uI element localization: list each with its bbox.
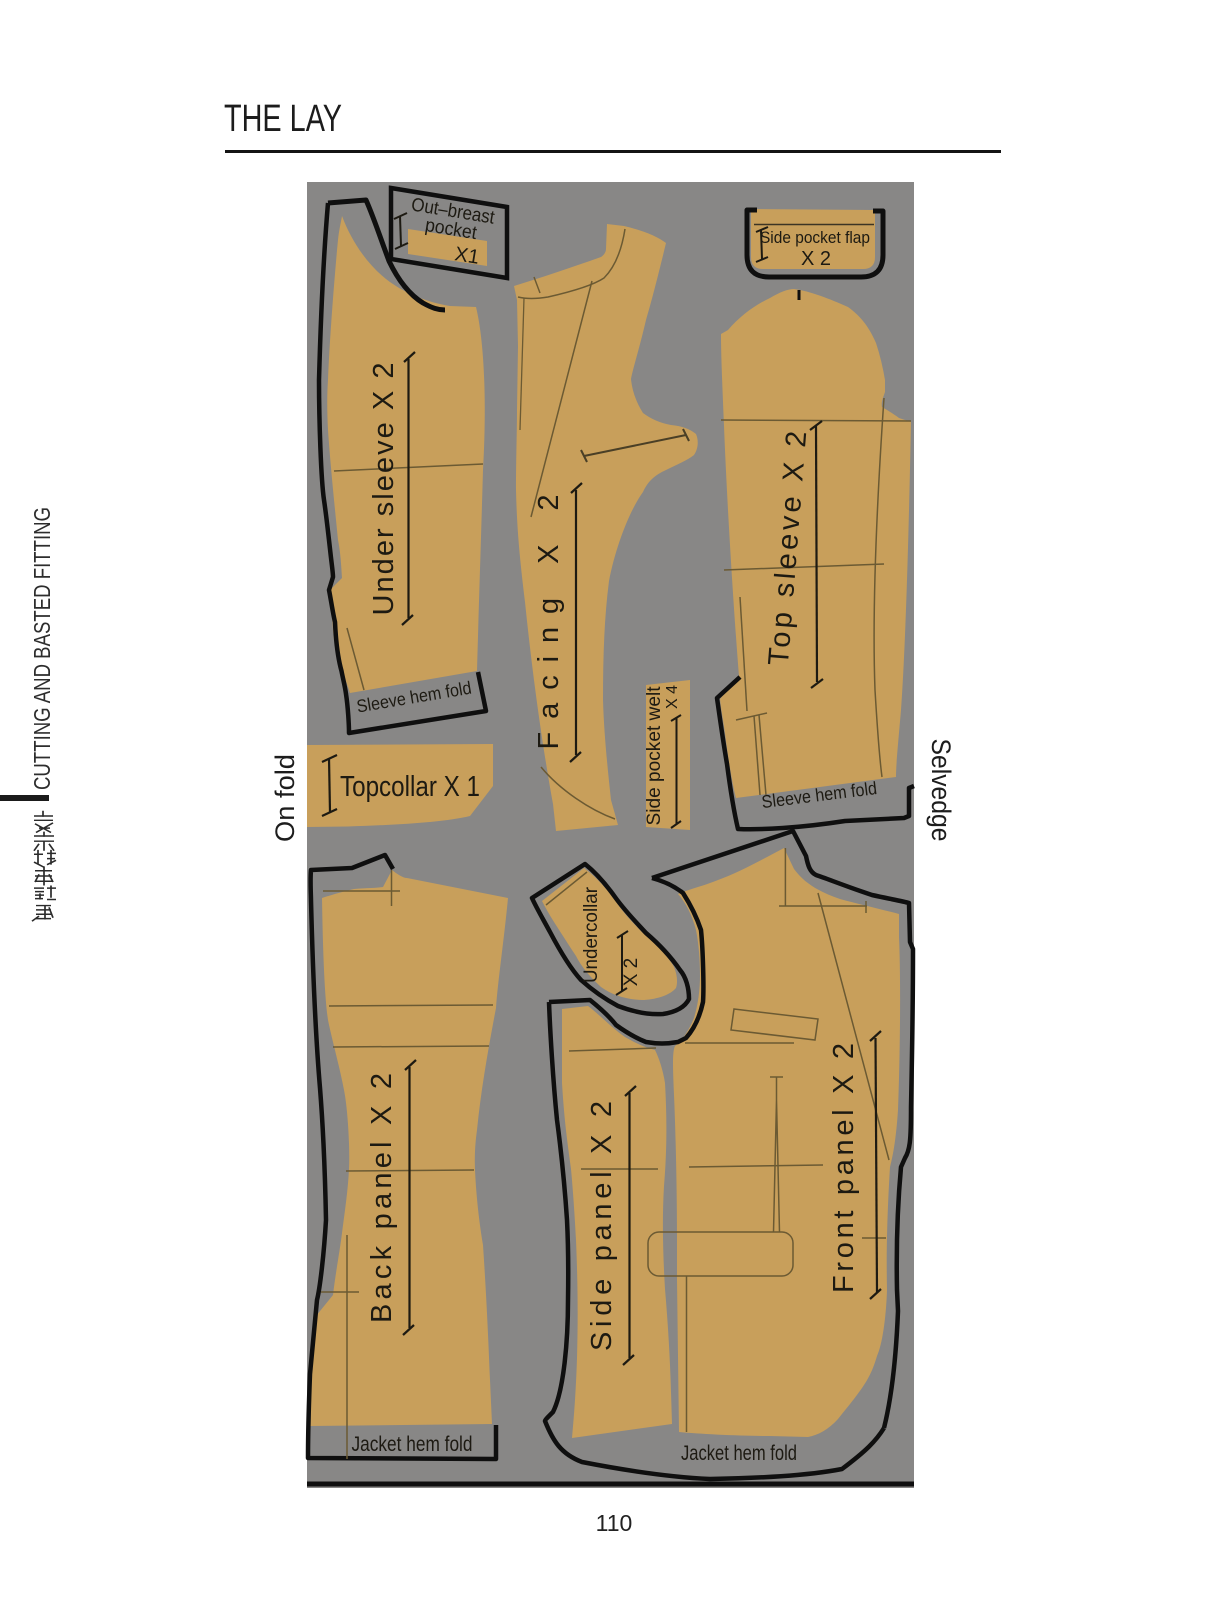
svg-text:Topcollar X 1: Topcollar X 1 — [340, 771, 480, 803]
svg-text:Side pocket flap: Side pocket flap — [760, 228, 870, 247]
svg-text:CUTTING AND BASTED FITTING: CUTTING AND BASTED FITTING — [29, 507, 55, 790]
svg-text:X 4: X 4 — [664, 685, 681, 709]
svg-text:THE LAY: THE LAY — [224, 98, 342, 140]
svg-text:Undercollar: Undercollar — [581, 886, 602, 983]
svg-text:X 2: X 2 — [621, 958, 642, 987]
svg-text:Jacket hem fold: Jacket hem fold — [352, 1433, 473, 1456]
svg-text:Selvedge: Selvedge — [926, 739, 956, 842]
svg-text:Under sleeve X 2: Under sleeve X 2 — [368, 363, 400, 616]
svg-text:Side pocket welt: Side pocket welt — [644, 686, 665, 826]
svg-text:X1: X1 — [453, 243, 481, 269]
svg-text:Back panel X 2: Back panel X 2 — [366, 1073, 398, 1323]
svg-text:X 2: X 2 — [801, 248, 831, 270]
svg-text:Side panel X 2: Side panel X 2 — [586, 1101, 618, 1351]
svg-text:Jacket hem fold: Jacket hem fold — [681, 1442, 797, 1465]
svg-text:On fold: On fold — [270, 754, 300, 842]
svg-text:Front panel X 2: Front panel X 2 — [828, 1043, 860, 1293]
